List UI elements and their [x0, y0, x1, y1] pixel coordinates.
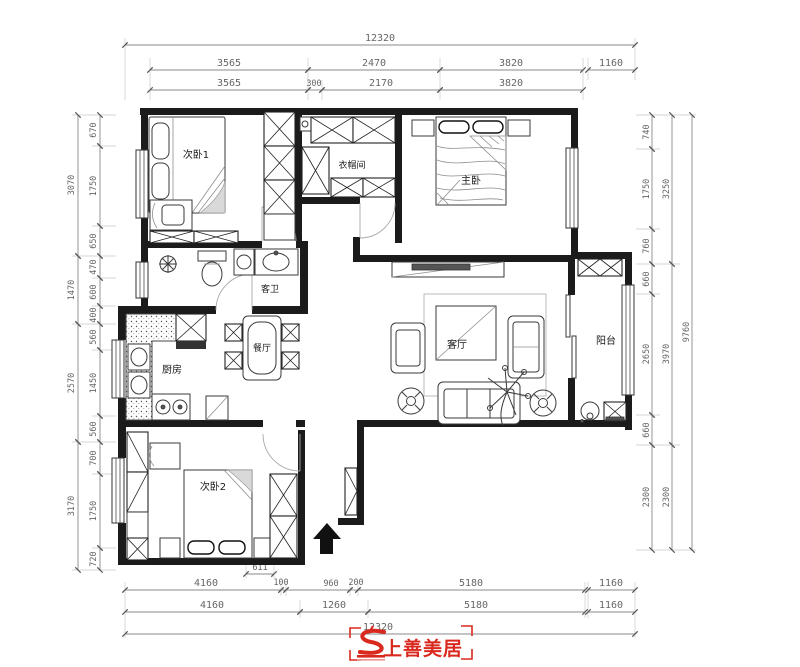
tv-console [392, 262, 504, 277]
balcony-furniture [581, 402, 627, 423]
dim-top: 2170 [369, 78, 393, 89]
sofa [438, 382, 520, 424]
dim-top: 300 [306, 79, 321, 89]
dim-top: 3820 [499, 58, 523, 69]
cabinet-strip [176, 341, 206, 349]
wardrobe [270, 474, 297, 558]
logo-subtext-bar [357, 659, 385, 661]
logo-brand-text: 上善美居 [383, 637, 463, 660]
dim-bottom: 100 [273, 578, 288, 588]
dimensions-bottom: 611 4160 100 960 200 5180 1160 4160 1260… [125, 556, 635, 638]
ceiling-speaker-icon [398, 388, 424, 414]
washbasin [255, 249, 298, 275]
desk-chair [149, 443, 180, 469]
exhaust-fan-icon [159, 255, 177, 273]
dim-bottom: 1260 [322, 600, 346, 611]
room-label-guest-bathroom: 客卫 [261, 283, 279, 295]
dim-top: 1160 [599, 58, 623, 69]
dim-left: 600 [89, 284, 99, 299]
dim-bottom: 200 [348, 578, 363, 588]
window [112, 458, 124, 523]
chair [225, 324, 242, 341]
dim-left-outer: 1470 [67, 280, 77, 300]
door-bedroom2 [263, 434, 300, 471]
dim-right-mid: 3970 [662, 344, 672, 364]
balcony-sliding-door [566, 295, 576, 378]
dim-left: 1750 [89, 501, 99, 521]
room-label-balcony: 阳台 [596, 334, 616, 347]
bed [149, 117, 225, 213]
dim-left-outer: 3170 [67, 496, 77, 516]
dim-right-total: 9760 [682, 322, 692, 342]
dim-bottom: 4160 [200, 600, 224, 611]
dim-right-mid: 2300 [662, 487, 672, 507]
dimensions-right: 740 1750 760 660 2650 660 2300 3250 3970… [636, 115, 696, 550]
sink [128, 344, 150, 370]
dim-right: 1750 [642, 179, 652, 199]
dim-left: 700 [89, 450, 99, 465]
dim-left: 650 [89, 233, 99, 248]
range-hood [176, 314, 206, 341]
room-label-bedroom1: 次卧1 [183, 148, 209, 161]
dim-left: 400 [89, 307, 99, 322]
stove [152, 394, 190, 420]
door-cloakroom [360, 203, 395, 238]
dim-right-mid: 3250 [662, 179, 672, 199]
logo-subtext-bar [357, 655, 385, 658]
window [566, 148, 578, 228]
window [622, 285, 634, 395]
floor-plan-drawing: 12320 3565 2470 3820 1160 3565 300 2170 … [0, 0, 800, 667]
chair [282, 352, 299, 369]
dim-left: 670 [89, 122, 99, 137]
toilet [198, 251, 226, 286]
bathroom-furniture [159, 249, 298, 286]
dim-top: 3565 [217, 58, 241, 69]
dim-left: 1450 [89, 373, 99, 393]
dim-bottom: 1160 [599, 578, 623, 589]
dim-bottom: 5180 [464, 600, 488, 611]
dim-right: 2650 [642, 344, 652, 364]
dim-left: 720 [89, 551, 99, 566]
desk-chair [150, 200, 192, 230]
water-heater-icon [581, 402, 600, 423]
nightstand [508, 120, 530, 136]
dim-right: 2300 [642, 487, 652, 507]
dim-right: 740 [642, 124, 652, 139]
dim-left: 560 [89, 421, 99, 436]
equipment-box [604, 402, 626, 421]
nightstand [412, 120, 434, 136]
cabinet [206, 396, 228, 420]
dimensions-left: 670 1750 650 470 600 400 560 1450 560 70… [67, 115, 116, 570]
room-label-master-bedroom: 主卧 [461, 174, 481, 187]
sink [128, 372, 150, 398]
entrance-arrow-icon [313, 523, 341, 554]
loveseat [508, 316, 544, 378]
room-labels: 次卧1 衣帽间 主卧 客卫 餐厅 厨房 客厅 阳台 次卧2 [162, 148, 616, 493]
room-label-bedroom2: 次卧2 [200, 480, 226, 493]
dim-bottom: 960 [323, 579, 338, 589]
room-label-living-room: 客厅 [447, 338, 467, 351]
dim-bottom: 4160 [194, 578, 218, 589]
master-bedroom-furniture [412, 117, 530, 205]
dim-top: 2470 [362, 58, 386, 69]
wardrobe [150, 231, 238, 243]
window [112, 340, 124, 398]
dim-left-outer: 3070 [67, 175, 77, 195]
bed [436, 117, 506, 205]
dim-top-total: 12320 [365, 33, 395, 44]
nightstand [160, 538, 180, 558]
ceiling-speaker-icon [530, 390, 556, 416]
room-label-cloakroom: 衣帽间 [338, 159, 365, 171]
bedroom1-furniture [149, 112, 295, 243]
bedroom2-furniture [127, 432, 297, 560]
tall-cabinet [264, 112, 295, 240]
living-room-furniture [391, 262, 556, 426]
dim-right: 660 [642, 422, 652, 437]
dim-left: 560 [89, 329, 99, 344]
dim-right: 760 [642, 238, 652, 253]
dimensions-top: 12320 3565 2470 3820 1160 3565 300 2170 … [125, 33, 635, 100]
dim-left: 1750 [89, 176, 99, 196]
washing-machine [234, 249, 254, 275]
chair [225, 352, 242, 369]
armchair [391, 323, 425, 373]
dim-bottom: 5180 [459, 578, 483, 589]
room-label-dining-room: 餐厅 [253, 342, 271, 354]
coffee-table [436, 306, 496, 360]
chair [282, 324, 299, 341]
room-label-kitchen: 厨房 [162, 363, 182, 376]
window [136, 262, 148, 298]
brand-logo: 上善美居 [350, 626, 472, 661]
dim-right: 660 [642, 271, 652, 286]
side-cabinet [127, 432, 148, 560]
dim-top: 3565 [217, 78, 241, 89]
dim-bottom: 1160 [599, 600, 623, 611]
floor-plan-page: 12320 3565 2470 3820 1160 3565 300 2170 … [0, 0, 800, 667]
window [136, 150, 148, 218]
cloakroom-furniture [300, 117, 395, 197]
dim-left: 470 [89, 259, 99, 274]
dim-top: 3820 [499, 78, 523, 89]
dim-left-outer: 2570 [67, 373, 77, 393]
